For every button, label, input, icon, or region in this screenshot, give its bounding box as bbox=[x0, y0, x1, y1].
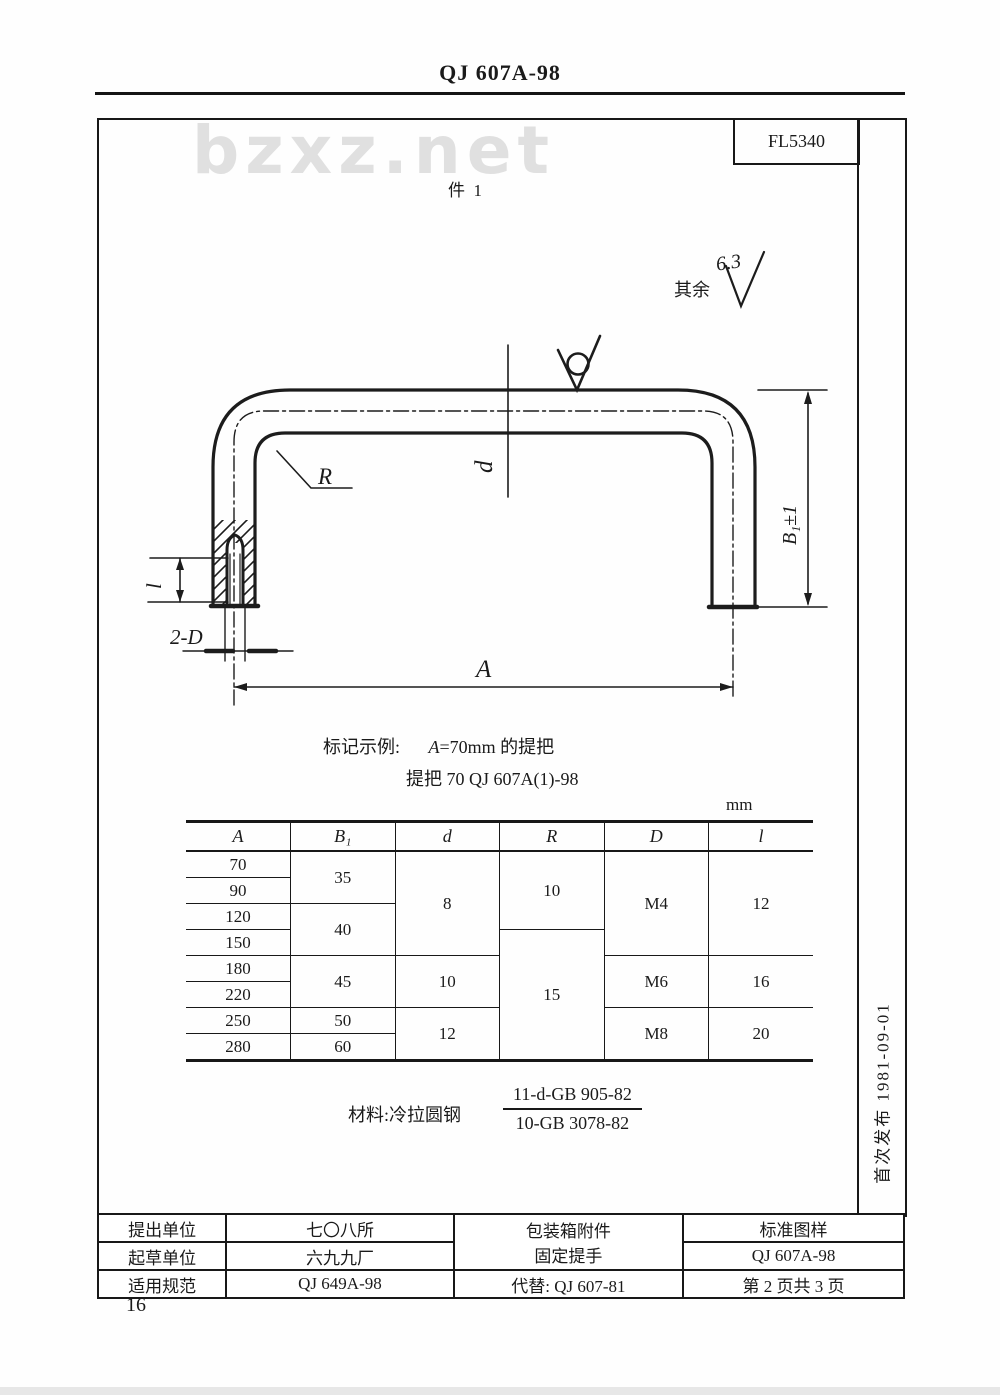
figure-code-box: FL5340 bbox=[733, 120, 860, 165]
col-header-R: R bbox=[500, 822, 605, 852]
table-row: 70 35 8 10 M4 12 bbox=[186, 851, 813, 878]
marking-example-line2: 提把 70 QJ 607A(1)-98 bbox=[406, 765, 579, 791]
title-block-row: 适用规范 QJ 649A-98 代替: QJ 607-81 第 2 页共 3 页 bbox=[98, 1270, 904, 1298]
col-header-B1: B₁ bbox=[291, 822, 396, 852]
material-standard-denominator: 10-GB 3078-82 bbox=[503, 1110, 642, 1134]
footer-value: 七〇八所 bbox=[226, 1214, 453, 1242]
footer-label: 提出单位 bbox=[98, 1214, 226, 1242]
cell-B1: 35 bbox=[291, 851, 396, 904]
cell-B1: 50 bbox=[291, 1008, 396, 1034]
table-unit: mm bbox=[726, 795, 752, 815]
title-block: 提出单位 七〇八所 包装箱附件 固定提手 标准图样 起草单位 六九九厂 QJ 6… bbox=[97, 1213, 905, 1299]
col-header-d: d bbox=[395, 822, 500, 852]
frame-right-strip-divider bbox=[857, 120, 859, 1213]
part-label: 件 1 bbox=[448, 176, 482, 201]
cell-A: 70 bbox=[186, 851, 291, 878]
document-page: QJ 607A-98 bzxz.net FL5340 件 1 bbox=[0, 0, 1000, 1395]
cell-A: 280 bbox=[186, 1034, 291, 1061]
standard-number: QJ 607A-98 bbox=[683, 1242, 904, 1270]
cell-l: 12 bbox=[709, 851, 814, 956]
document-title: QJ 607A-98 bbox=[0, 60, 1000, 86]
material-standard-numerator: 11-d-GB 905-82 bbox=[503, 1084, 642, 1110]
standard-type: 标准图样 bbox=[683, 1214, 904, 1242]
product-name: 固定提手 bbox=[459, 1242, 678, 1267]
cell-l: 20 bbox=[709, 1008, 814, 1061]
cell-B1: 40 bbox=[291, 904, 396, 956]
marking-variable: A bbox=[429, 737, 440, 757]
cell-A: 90 bbox=[186, 878, 291, 904]
col-header-D: D bbox=[604, 822, 709, 852]
marking-text: =70mm 的提把 bbox=[440, 737, 555, 757]
marking-example-line1: 标记示例: A=70mm 的提把 bbox=[323, 733, 554, 759]
cell-R: 10 bbox=[500, 851, 605, 930]
footer-value: QJ 649A-98 bbox=[226, 1270, 453, 1298]
table-header-row: A B₁ d R D l bbox=[186, 822, 813, 852]
cell-D: M4 bbox=[604, 851, 709, 956]
footer-label: 起草单位 bbox=[98, 1242, 226, 1270]
cell-D: M6 bbox=[604, 956, 709, 1008]
cell-d: 10 bbox=[395, 956, 500, 1008]
cell-B1: 60 bbox=[291, 1034, 396, 1061]
cell-D: M8 bbox=[604, 1008, 709, 1061]
product-category: 包装箱附件 bbox=[459, 1217, 678, 1242]
cell-A: 180 bbox=[186, 956, 291, 982]
first-release-note: 首次发布 1981-09-01 bbox=[869, 1002, 894, 1184]
cell-A: 220 bbox=[186, 982, 291, 1008]
material-note: 材料:冷拉圆钢 11-d-GB 905-82 10-GB 3078-82 bbox=[348, 1084, 642, 1134]
title-block-row: 提出单位 七〇八所 包装箱附件 固定提手 标准图样 bbox=[98, 1214, 904, 1242]
cell-d: 12 bbox=[395, 1008, 500, 1061]
footer-value: 六九九厂 bbox=[226, 1242, 453, 1270]
scan-edge-strip bbox=[0, 1387, 1000, 1395]
dimension-table: A B₁ d R D l 70 35 8 10 M4 12 90 120 40 … bbox=[186, 820, 813, 1062]
material-standards: 11-d-GB 905-82 10-GB 3078-82 bbox=[503, 1084, 642, 1134]
cell-B1: 45 bbox=[291, 956, 396, 1008]
col-header-l: l bbox=[709, 822, 814, 852]
cell-l: 16 bbox=[709, 956, 814, 1008]
replaces-note: 代替: QJ 607-81 bbox=[454, 1270, 683, 1298]
product-name-cell: 包装箱附件 固定提手 bbox=[454, 1214, 683, 1270]
footer-label: 适用规范 bbox=[98, 1270, 226, 1298]
cell-A: 120 bbox=[186, 904, 291, 930]
material-label: 材料:冷拉圆钢 bbox=[348, 1091, 461, 1127]
title-rule bbox=[95, 92, 905, 95]
cell-d: 8 bbox=[395, 851, 500, 956]
marking-label: 标记示例: bbox=[323, 737, 400, 757]
cell-A: 150 bbox=[186, 930, 291, 956]
col-header-A: A bbox=[186, 822, 291, 852]
page-of-pages: 第 2 页共 3 页 bbox=[683, 1270, 904, 1298]
cell-A: 250 bbox=[186, 1008, 291, 1034]
cell-R: 15 bbox=[500, 930, 605, 1061]
figure-code: FL5340 bbox=[768, 131, 825, 152]
